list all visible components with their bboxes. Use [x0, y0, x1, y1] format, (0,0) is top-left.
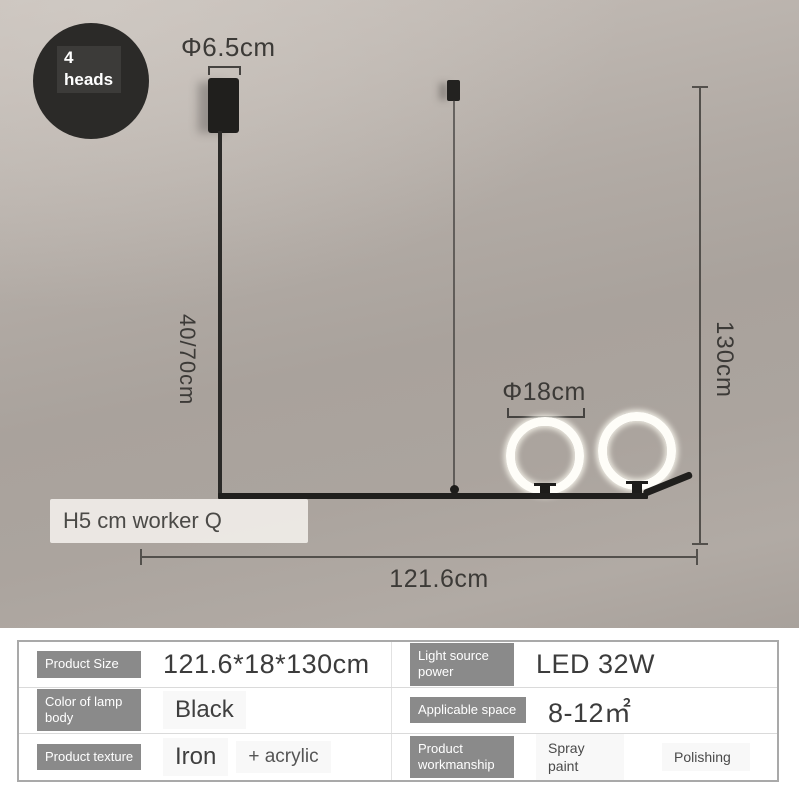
- label-color-of-lamp-body: Color of lamp body: [37, 689, 141, 732]
- length-dimension-line: [140, 556, 698, 558]
- value-workmanship-spray-paint: Spray paint: [536, 734, 624, 780]
- spec-table: Product Size 121.6*18*130cm Light source…: [17, 640, 779, 782]
- spec-row-1: Product Size 121.6*18*130cm Light source…: [19, 642, 777, 688]
- wire-ceiling-fitting: [447, 80, 460, 101]
- rod-length-label: 40/70cm: [174, 314, 200, 405]
- spec-cell-applicable-space: Applicable space 8-12㎡: [392, 688, 777, 733]
- value-texture-acrylic: + acrylic: [236, 741, 330, 773]
- label-light-source-power: Light source power: [410, 643, 514, 686]
- canopy-diameter-label: Φ6.5cm: [181, 32, 271, 63]
- product-photo: 4 heads Φ6.5cm 40/70cm 130cm Φ18cm H5 cm…: [0, 0, 799, 628]
- heads-count-badge: 4 heads: [33, 23, 149, 139]
- value-light-source-power: LED 32W: [536, 649, 655, 680]
- spec-cell-product-texture: Product texture Iron + acrylic: [19, 734, 392, 780]
- label-applicable-space: Applicable space: [410, 697, 526, 723]
- canopy-diameter-bracket: [208, 66, 241, 75]
- spec-cell-lamp-color: Color of lamp body Black: [19, 688, 392, 733]
- total-height-label: 130cm: [710, 321, 738, 398]
- value-applicable-space: 8-12㎡: [548, 691, 632, 730]
- heads-count-text: 4 heads: [57, 46, 121, 93]
- spec-cell-product-size: Product Size 121.6*18*130cm: [19, 642, 392, 687]
- label-product-workmanship: Product workmanship: [410, 736, 514, 779]
- value-product-size: 121.6*18*130cm: [163, 649, 370, 680]
- heads-count-number: 4: [64, 47, 121, 69]
- spec-row-2: Color of lamp body Black Applicable spac…: [19, 688, 777, 734]
- ceiling-canopy: [208, 78, 239, 133]
- halo-ring-2: [598, 412, 676, 490]
- product-page: 4 heads Φ6.5cm 40/70cm 130cm Φ18cm H5 cm…: [0, 0, 799, 800]
- suspension-wire: [453, 100, 455, 490]
- label-product-size: Product Size: [37, 651, 141, 677]
- ring-diameter-label: Φ18cm: [499, 378, 589, 407]
- fixture-length-label: 121.6cm: [377, 565, 501, 594]
- watermark-text: H5 cm worker Q: [50, 499, 308, 543]
- value-workmanship-polishing: Polishing: [662, 743, 750, 771]
- value-lamp-color: Black: [163, 691, 246, 729]
- value-texture-iron: Iron: [163, 738, 228, 776]
- spec-row-3: Product texture Iron + acrylic Product w…: [19, 734, 777, 780]
- label-product-texture: Product texture: [37, 744, 141, 770]
- spec-cell-workmanship: Product workmanship Spray paint Polishin…: [392, 734, 777, 780]
- heads-count-word: heads: [64, 69, 121, 91]
- spec-cell-light-power: Light source power LED 32W: [392, 642, 777, 687]
